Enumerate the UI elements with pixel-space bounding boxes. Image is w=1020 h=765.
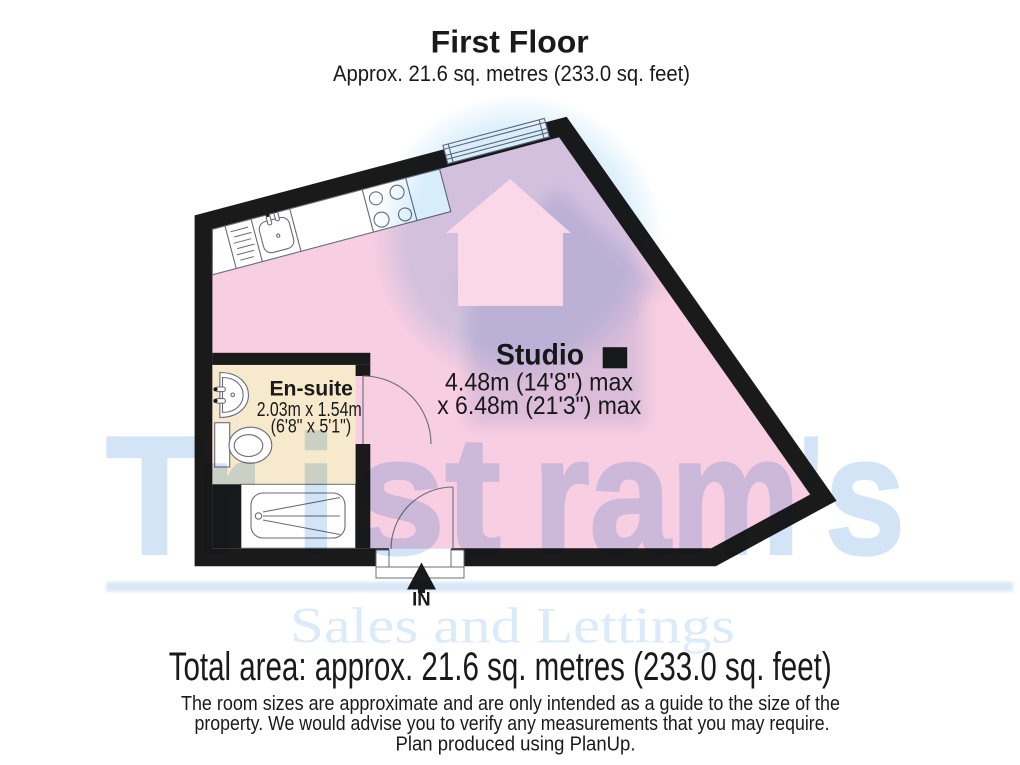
svg-text:Approx. 21.6 sq. metres (233.0: Approx. 21.6 sq. metres (233.0 sq. feet) (333, 61, 690, 86)
svg-text:The room sizes are approximate: The room sizes are approximate and are o… (181, 693, 840, 715)
svg-text:Total area: approx. 21.6 sq. m: Total area: approx. 21.6 sq. metres (233… (169, 645, 832, 689)
svg-text:Plan produced using PlanUp.: Plan produced using PlanUp. (396, 733, 636, 755)
svg-text:property. We would advise you: property. We would advise you to verify … (195, 713, 830, 735)
svg-text:En-suite: En-suite (269, 376, 353, 400)
svg-text:First Floor: First Floor (431, 24, 589, 60)
